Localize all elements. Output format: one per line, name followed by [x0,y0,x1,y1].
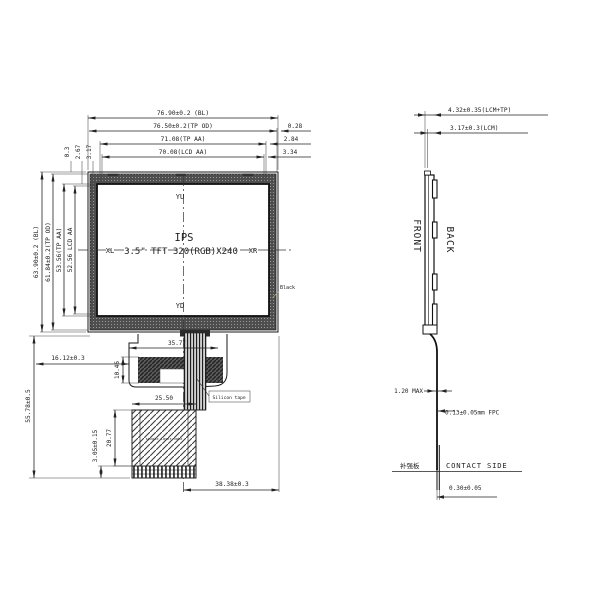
dim-tp-aa-width: 71.08(TP AA) [161,136,206,143]
dim-stiffener-height: 20.77 [106,429,113,447]
gap-right-tp-aa: 2.84 [284,136,299,143]
dim-contact-thickness: 0.30±0.05 [449,485,482,492]
gap-top-bl: 0.3 [64,146,71,157]
stiffener-note: single layer note [146,437,183,441]
fpc-contact-fingers [132,466,196,478]
side-tape-3 [433,274,438,290]
back-label: BACK [444,227,455,254]
top-mark-2 [176,174,186,177]
dim-bl-height: 63.90±0.2 (BL) [33,226,40,278]
dim-tp-aa-height: 53.56(TP AA) [56,228,63,273]
dim-lcd-aa-width: 70.08(LCD AA) [159,149,207,156]
dim-finger-height: 3.05±0.15 [92,429,99,462]
dim-center-to-edge: 38.38±0.3 [215,481,249,488]
side-top-step [425,171,431,175]
stiffener-label-cn: 补强板 [400,461,420,470]
dim-bl-width: 76.90±0.2 (BL) [157,110,209,117]
dim-lcm-thickness: 3.17±0.3(LCM) [450,125,498,132]
dim-lcd-aa-height: 52.56 LCD AA [67,227,74,272]
front-label: FRONT [411,219,422,253]
front-left-dimensions: 63.90±0.2 (BL) 61.84±0.2(TP OD) 53.56(TP… [33,144,95,332]
bezel-color-note: Black [280,285,295,291]
side-view: 4.32±0.35(LCM+TP) 3.17±0.3(LCM) FRONT BA… [392,107,548,500]
side-tape-4 [433,304,438,328]
side-tape-2 [433,222,438,238]
dim-tape-height: 10.46 [114,361,121,379]
axis-label-yu: YU [176,193,184,201]
fpc-trace-bundle [184,333,206,410]
axis-label-xl: XL [106,247,114,255]
contact-side-label: CONTACT SIDE [446,461,508,470]
dim-left-offset: 16.12±0.3 [51,355,85,362]
screen-subtitle: 3.5" TFT 320(RGB)X240 [124,247,238,257]
axis-label-yd: YD [176,302,184,310]
gap-top-tp-aa: 2.67 [75,144,82,159]
dim-stiffener-width: 25.50 [155,395,173,402]
gap-right-tp-od: 0.28 [288,123,303,130]
dim-tp-od-height: 61.84±0.2(TP OD) [45,222,52,282]
mechanical-drawing-page: YU YD XL XR IPS 3.5" TFT 320(RGB)X240 Bl… [0,0,600,600]
top-mark-3 [243,174,253,177]
dim-top-width: 35.77 [168,340,186,347]
top-mark-1 [108,174,118,177]
lcd-module-drawing: YU YD XL XR IPS 3.5" TFT 320(RGB)X240 Bl… [0,0,600,600]
axis-label-xr: XR [249,247,258,255]
side-tape-1 [433,180,438,198]
screen-title: IPS [175,232,194,244]
tape-label: Silicon tape [213,395,246,401]
side-foot [423,325,437,334]
dim-total-thickness: 4.32±0.35(LCM+TP) [448,107,511,114]
fpc-tape-notch [160,369,187,383]
side-fpc-line [430,334,437,470]
gap-top-lcd-aa: 3.17 [86,144,93,159]
dim-total-height: 55.78±0.5 [25,389,32,423]
gap-right-lcd-aa: 3.34 [283,149,298,156]
dim-fpc-thickness: 0.13±0.05mm FPC [445,410,500,417]
dim-bend: 1.20 MAX [394,388,423,395]
dim-tp-od-width: 76.50±0.2(TP OD) [153,123,213,130]
front-top-dimensions: 76.90±0.2 (BL) 76.50±0.2(TP OD) 0.28 71.… [88,110,311,182]
